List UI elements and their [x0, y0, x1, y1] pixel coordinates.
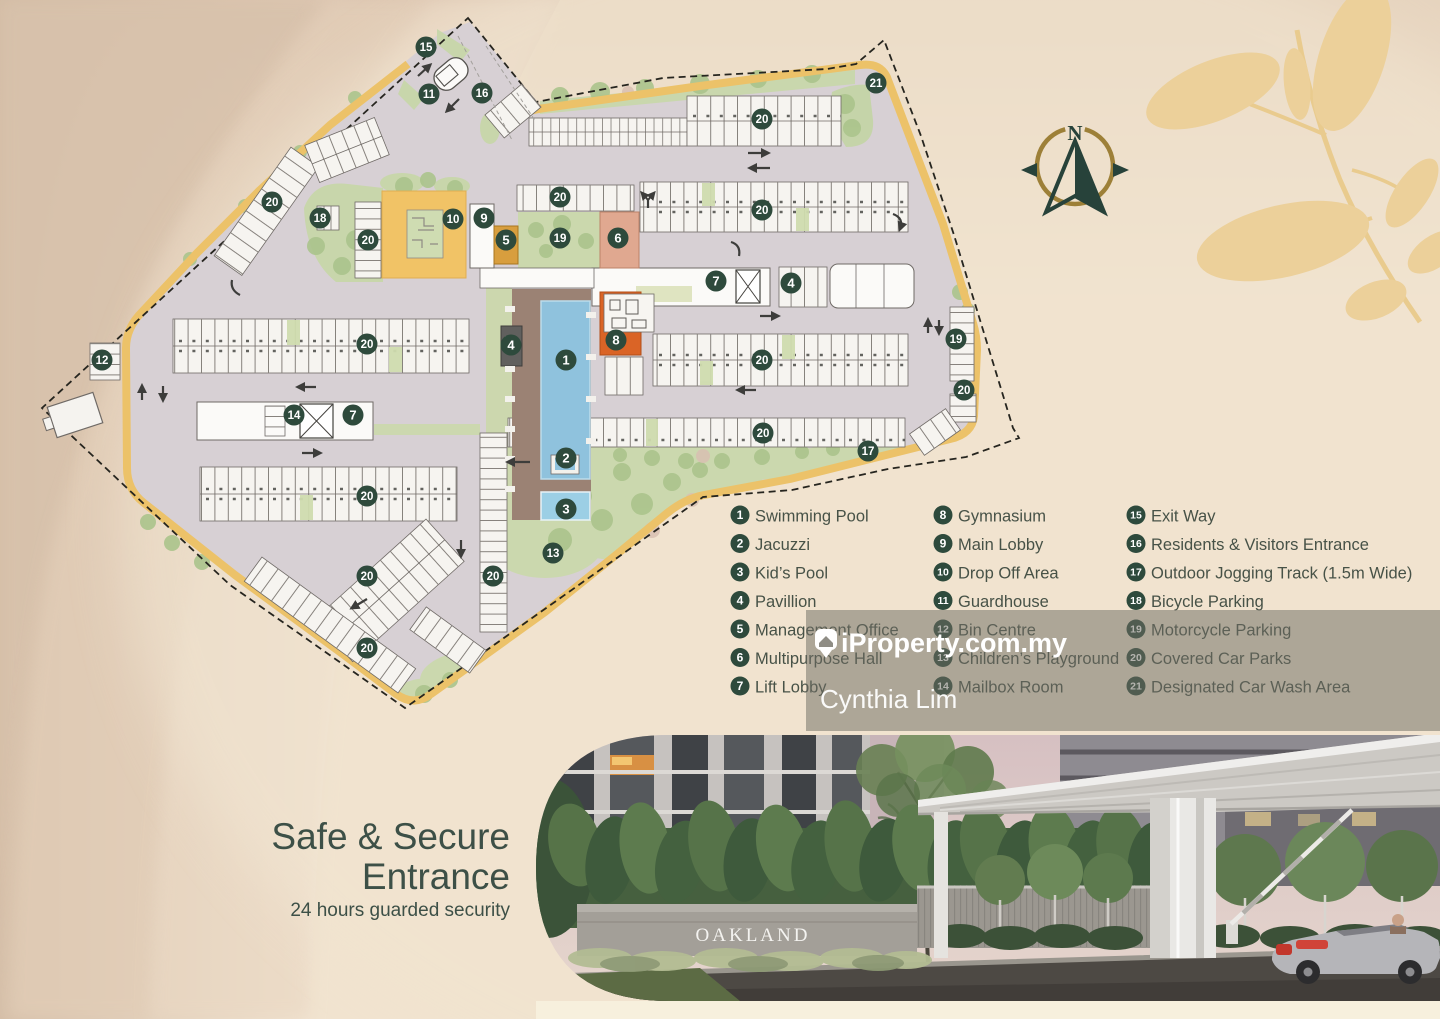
svg-text:20: 20: [757, 428, 770, 440]
svg-text:Bicycle Parking: Bicycle Parking: [1151, 593, 1264, 611]
svg-text:OAKLAND: OAKLAND: [696, 925, 811, 946]
svg-text:8: 8: [940, 508, 947, 522]
svg-text:20: 20: [362, 235, 375, 247]
svg-text:20: 20: [554, 192, 567, 204]
svg-text:16: 16: [476, 88, 489, 100]
svg-text:12: 12: [96, 355, 109, 367]
svg-text:18: 18: [1130, 595, 1142, 607]
svg-text:iProperty.com.my: iProperty.com.my: [841, 628, 1067, 658]
svg-text:15: 15: [1130, 510, 1142, 522]
svg-text:20: 20: [487, 571, 500, 583]
svg-text:Safe & Secure: Safe & Secure: [271, 816, 510, 857]
svg-text:1: 1: [737, 508, 744, 522]
svg-text:2: 2: [737, 537, 744, 551]
svg-text:11: 11: [423, 89, 436, 101]
svg-text:21: 21: [870, 78, 883, 90]
svg-text:Entrance: Entrance: [362, 856, 510, 897]
svg-text:20: 20: [361, 339, 374, 351]
svg-text:3: 3: [562, 502, 569, 517]
svg-text:15: 15: [420, 42, 433, 54]
svg-text:14: 14: [288, 410, 301, 422]
svg-text:20: 20: [756, 205, 769, 217]
svg-text:1: 1: [562, 353, 569, 368]
svg-text:2: 2: [562, 451, 569, 466]
svg-text:7: 7: [349, 408, 356, 423]
svg-text:9: 9: [480, 211, 487, 226]
svg-text:13: 13: [547, 548, 560, 560]
svg-text:3: 3: [737, 565, 744, 579]
svg-text:9: 9: [940, 537, 947, 551]
svg-text:5: 5: [502, 233, 509, 248]
svg-text:Guardhouse: Guardhouse: [958, 593, 1049, 611]
svg-text:20: 20: [756, 355, 769, 367]
svg-text:20: 20: [361, 491, 374, 503]
svg-text:7: 7: [737, 679, 744, 693]
svg-text:Drop Off Area: Drop Off Area: [958, 565, 1059, 583]
svg-text:8: 8: [612, 333, 619, 348]
svg-text:20: 20: [958, 385, 971, 397]
svg-text:Exit Way: Exit Way: [1151, 508, 1216, 526]
svg-text:6: 6: [737, 651, 744, 665]
svg-text:7: 7: [712, 274, 719, 289]
svg-text:18: 18: [314, 213, 327, 225]
svg-text:Swimming Pool: Swimming Pool: [755, 508, 869, 526]
svg-text:4: 4: [507, 338, 515, 353]
svg-text:16: 16: [1130, 538, 1142, 550]
svg-text:4: 4: [787, 276, 795, 291]
svg-text:5: 5: [737, 622, 744, 636]
svg-text:Pavillion: Pavillion: [755, 593, 816, 611]
svg-text:Main Lobby: Main Lobby: [958, 536, 1044, 554]
svg-text:11: 11: [937, 595, 948, 607]
svg-text:Kid’s Pool: Kid’s Pool: [755, 565, 828, 583]
svg-text:Gymnasium: Gymnasium: [958, 508, 1046, 526]
svg-text:20: 20: [361, 571, 374, 583]
svg-text:Outdoor Jogging Track (1.5m Wi: Outdoor Jogging Track (1.5m Wide): [1151, 565, 1412, 583]
svg-text:20: 20: [756, 114, 769, 126]
svg-text:Residents & Visitors Entrance: Residents & Visitors Entrance: [1151, 536, 1369, 554]
svg-text:Cynthia Lim: Cynthia Lim: [820, 684, 957, 714]
svg-text:4: 4: [737, 594, 744, 608]
svg-text:19: 19: [950, 334, 963, 346]
svg-text:10: 10: [937, 567, 949, 579]
svg-text:10: 10: [447, 214, 460, 226]
svg-text:24 hours guarded security: 24 hours guarded security: [290, 900, 510, 921]
svg-text:17: 17: [862, 446, 875, 458]
svg-text:20: 20: [266, 197, 279, 209]
svg-text:17: 17: [1130, 567, 1142, 579]
svg-text:6: 6: [614, 231, 621, 246]
svg-text:20: 20: [361, 643, 374, 655]
svg-text:Jacuzzi: Jacuzzi: [755, 536, 810, 554]
svg-text:19: 19: [554, 233, 567, 245]
